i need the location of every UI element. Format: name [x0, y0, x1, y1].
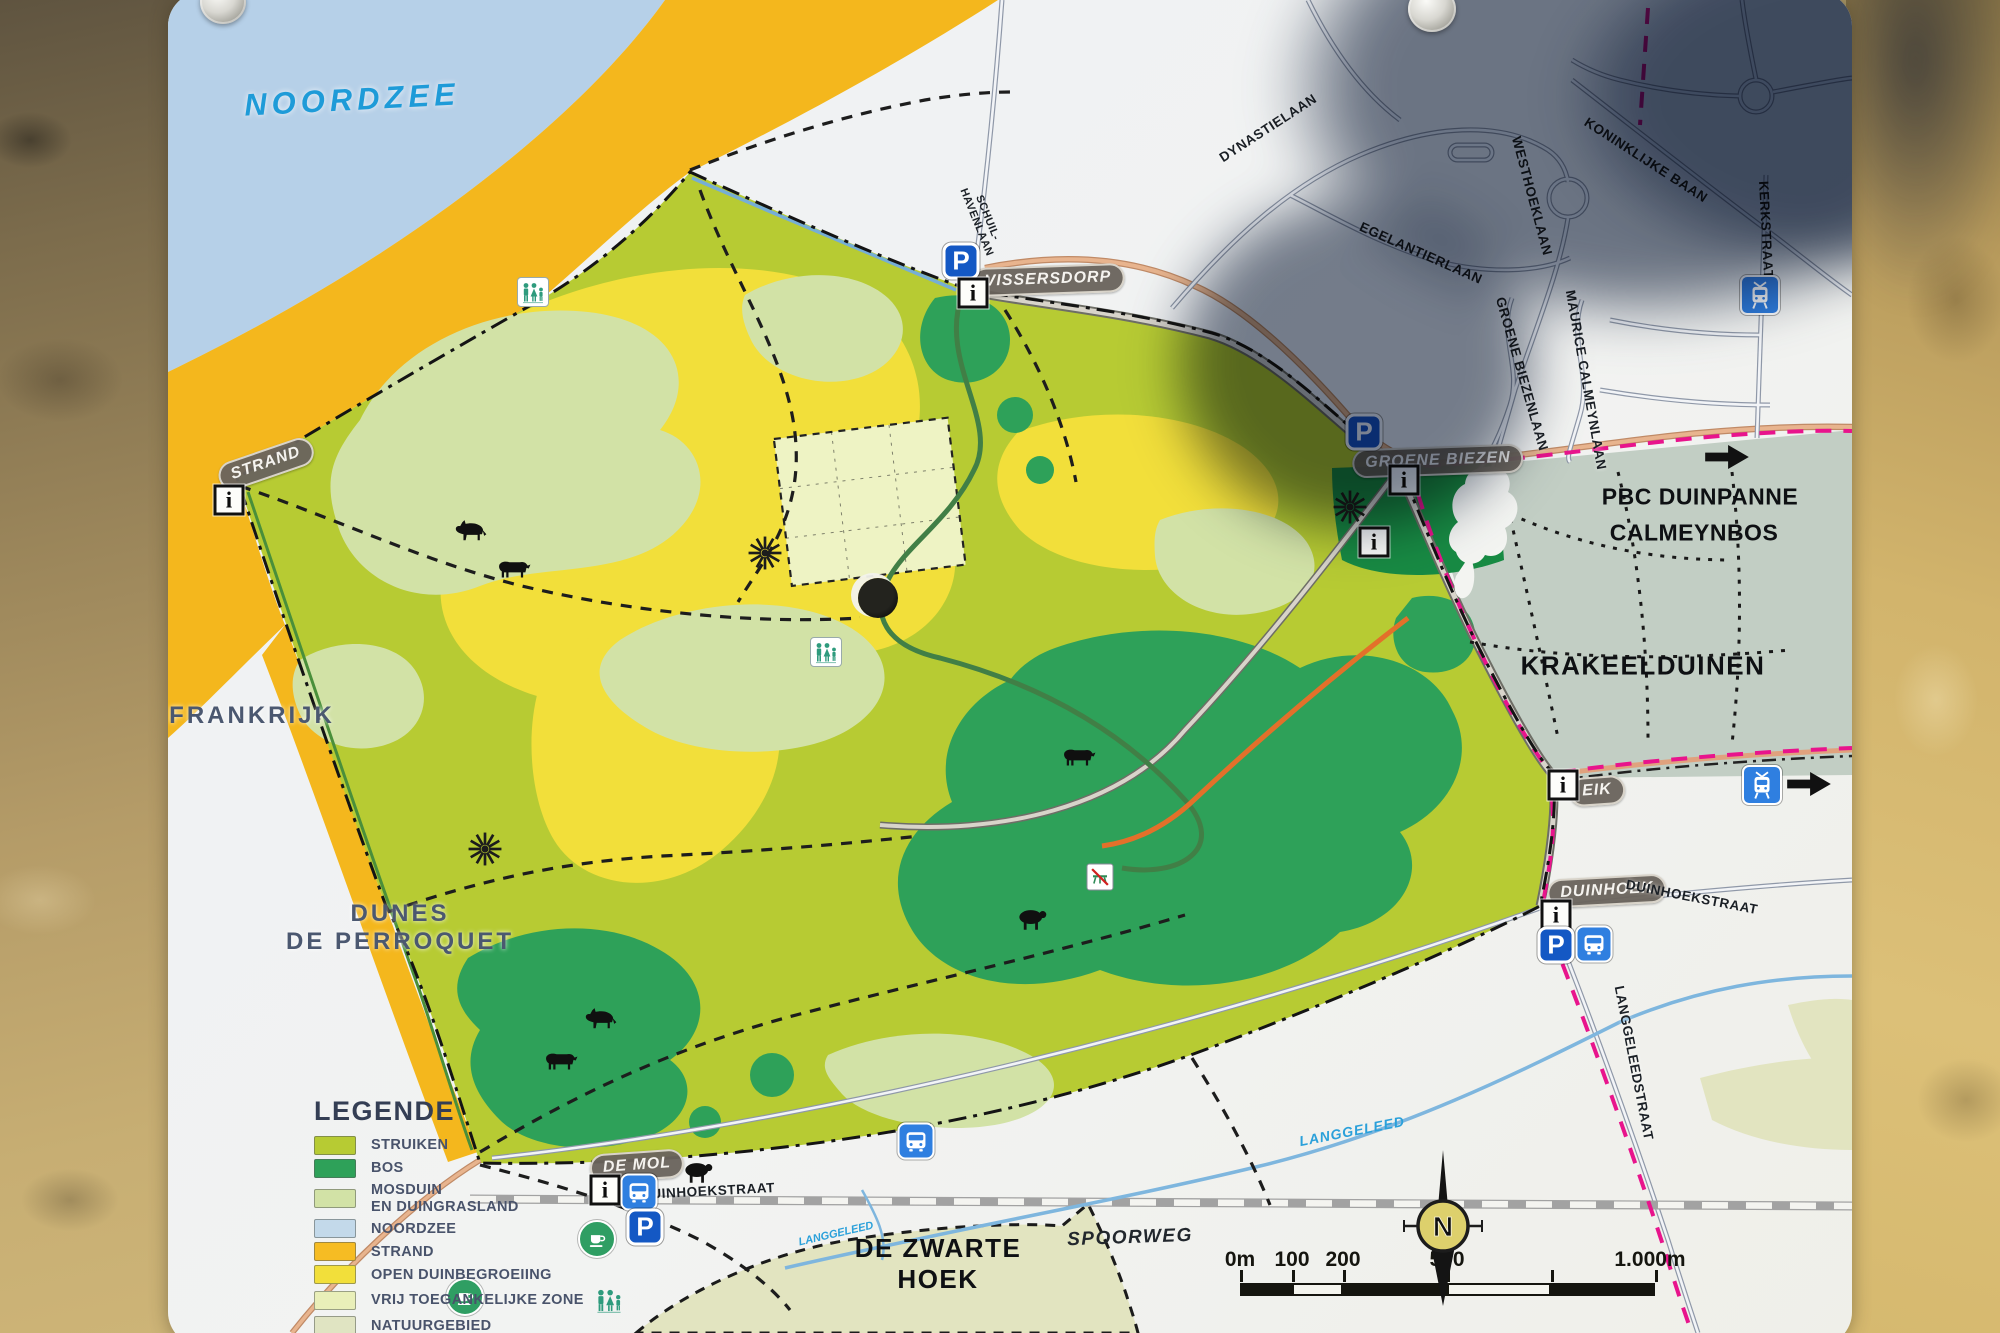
legend-label: OPEN DUINBEGROEIING [371, 1267, 552, 1284]
legend-item: NATUURGEBIED [314, 1316, 624, 1333]
natuurgebied-areas [1700, 999, 1852, 1150]
legend-swatch [314, 1291, 356, 1310]
vrij-toegankelijke-zone [774, 418, 966, 586]
legend-label: NATUURGEBIED [371, 1318, 492, 1333]
railway-spoorweg [470, 1199, 1852, 1206]
legend-swatch [314, 1316, 356, 1333]
legend-item: STRAND [314, 1242, 624, 1261]
legend-swatch [314, 1136, 356, 1155]
legend-item: MOSDUIN EN DUINGRASLAND [314, 1182, 624, 1215]
legend-panel: LEGENDE STRUIKENBOSMOSDUIN EN DUINGRASLA… [314, 1096, 624, 1333]
legend-swatch [314, 1265, 356, 1284]
legend-item: BOS [314, 1159, 624, 1178]
legend-item: VRIJ TOEGANKELIJKE ZONE [314, 1288, 624, 1312]
legend-label: MOSDUIN EN DUINGRASLAND [371, 1182, 519, 1215]
shadow-on-sand [1830, 0, 2000, 300]
legend-item: OPEN DUINBEGROEIING [314, 1265, 624, 1284]
legend-label: VRIJ TOEGANKELIJKE ZONE [371, 1292, 584, 1309]
north-compass: N [1378, 1138, 1508, 1308]
legend-label: STRUIKEN [371, 1137, 448, 1154]
legend-item: STRUIKEN [314, 1136, 624, 1155]
legend-swatch [314, 1159, 356, 1178]
compass-north-letter: N [1433, 1211, 1453, 1242]
map-sign-board: NOORDZEESTRANDVISSERSDORPGROENE BIEZENEI… [168, 0, 1852, 1333]
legend-swatch [314, 1219, 356, 1238]
legend-label: BOS [371, 1160, 404, 1177]
legend-swatch [314, 1242, 356, 1261]
legend-item: NOORDZEE [314, 1219, 624, 1238]
legend-label: NOORDZEE [371, 1221, 456, 1238]
legend-swatch [314, 1189, 356, 1208]
photo-of-map-sign: NOORDZEESTRANDVISSERSDORPGROENE BIEZENEI… [0, 0, 2000, 1333]
legend-title: LEGENDE [314, 1096, 624, 1127]
sand-background-left [0, 0, 180, 1333]
legend-label: STRAND [371, 1244, 434, 1261]
zwarte-hoek-area [636, 1204, 1138, 1333]
people-icon [594, 1288, 624, 1312]
